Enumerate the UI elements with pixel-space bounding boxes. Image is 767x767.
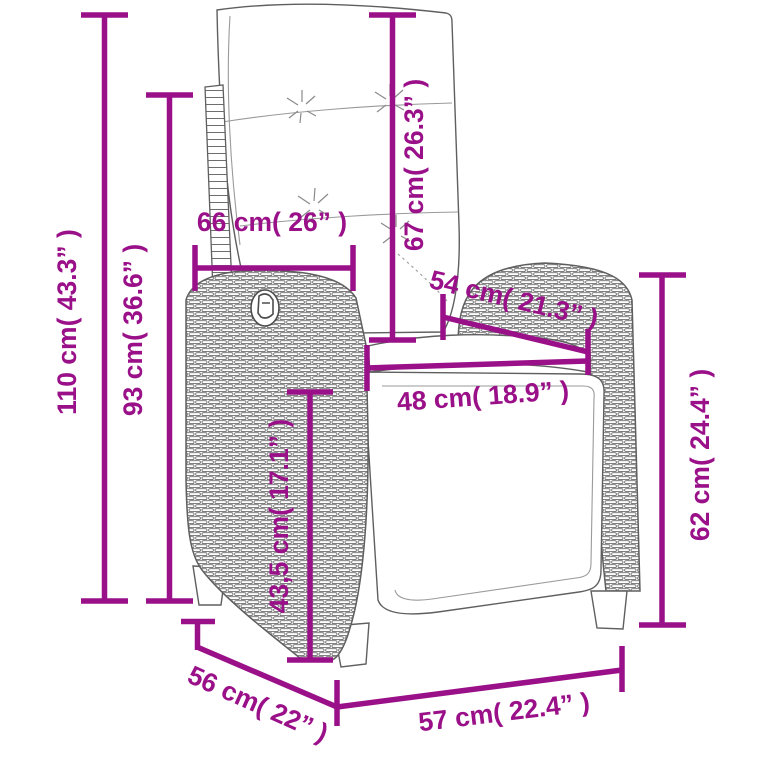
dimension-diagram: 110 cm( 43.3” ) 93 cm( 36.6” ) 66 cm( 26… — [0, 0, 767, 767]
leg-rear-right — [591, 591, 627, 629]
dim-backrest-height: 93 cm( 36.6” ) — [118, 95, 193, 601]
dim-base-width: 57 cm( 22.4” ) — [337, 646, 622, 737]
dim-seat-height-label: 43,5 cm( 17.1” ) — [264, 419, 294, 613]
dim-backrest-length-label: 67 cm( 26.3” ) — [399, 79, 429, 251]
dim-armrest-height-label: 62 cm( 24.4” ) — [685, 369, 715, 541]
dim-total-height: 110 cm( 43.3” ) — [52, 15, 128, 601]
dim-back-width-label: 66 cm( 26” ) — [197, 207, 347, 237]
dim-total-height-label: 110 cm( 43.3” ) — [52, 229, 82, 415]
dim-armrest-height: 62 cm( 24.4” ) — [639, 275, 715, 625]
recline-lever-knob — [258, 294, 273, 318]
dim-backrest-height-label: 93 cm( 36.6” ) — [118, 244, 148, 416]
